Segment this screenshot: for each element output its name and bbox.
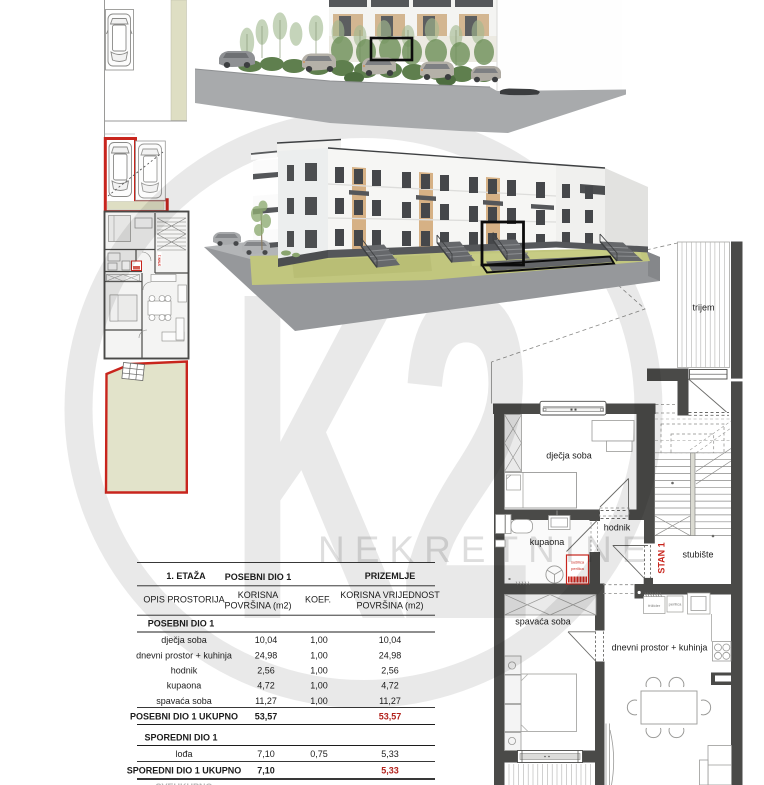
svg-text:SPOREDNI DIO 1 UKUPNO: SPOREDNI DIO 1 UKUPNO [127, 765, 242, 775]
svg-text:trijem: trijem [693, 303, 715, 313]
svg-text:SPOREDNI DIO 1: SPOREDNI DIO 1 [144, 732, 217, 742]
svg-text:frižider: frižider [648, 603, 661, 608]
svg-text:7,10: 7,10 [257, 765, 275, 775]
svg-text:perilica: perilica [669, 602, 682, 607]
svg-text:lođa: lođa [175, 749, 192, 759]
svg-text:0,75: 0,75 [310, 749, 328, 759]
svg-text:STAN 1: STAN 1 [657, 542, 667, 573]
svg-text:dječja soba: dječja soba [546, 451, 592, 461]
svg-text:STAN 1: STAN 1 [158, 255, 162, 266]
svg-text:5,33: 5,33 [381, 749, 399, 759]
svg-text:hodnik: hodnik [171, 665, 198, 675]
svg-text:NEKRETNINE: NEKRETNINE [318, 529, 656, 570]
svg-text:stubište: stubište [682, 550, 713, 560]
svg-text:1. ETAŽA: 1. ETAŽA [166, 570, 206, 581]
svg-text:5,33: 5,33 [381, 765, 399, 775]
svg-text:kupaona: kupaona [167, 681, 202, 691]
svg-text:POSEBNI DIO 1 UKUPNO: POSEBNI DIO 1 UKUPNO [130, 711, 238, 721]
svg-text:7,10: 7,10 [257, 749, 275, 759]
svg-text:spavaća soba: spavaća soba [156, 696, 212, 706]
svg-text:dnevni prostor + kuhinja: dnevni prostor + kuhinja [612, 643, 708, 653]
